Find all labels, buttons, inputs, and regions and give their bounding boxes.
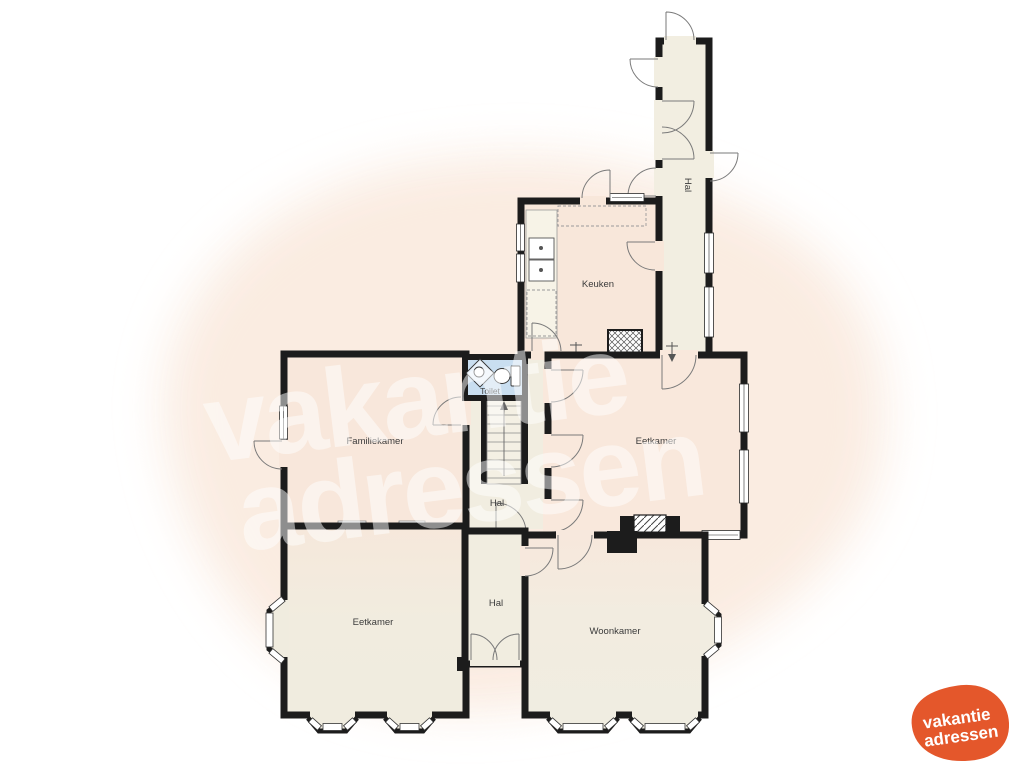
bay-window: [700, 601, 722, 659]
bay-window: [548, 711, 618, 731]
room-label-hall-lower: Hal: [489, 598, 503, 609]
room-label-eetkamer-lower: Eetkamer: [353, 617, 394, 628]
brand-logo: vakantie adressen: [912, 685, 1009, 761]
room-label-keuken: Keuken: [582, 279, 614, 290]
bay-window: [266, 597, 289, 664]
room-label-woonkamer: Woonkamer: [589, 626, 640, 637]
floorplan-canvas: Hal: [0, 0, 1024, 768]
bay-window: [308, 711, 357, 731]
room-label-hall-top: Hal: [682, 178, 693, 192]
bay-window: [630, 711, 700, 731]
room-woonkamer: Woonkamer: [520, 530, 722, 731]
chimney-block: [607, 531, 637, 553]
floorplan-page: Hal: [0, 0, 1024, 768]
bay-window: [385, 711, 434, 731]
